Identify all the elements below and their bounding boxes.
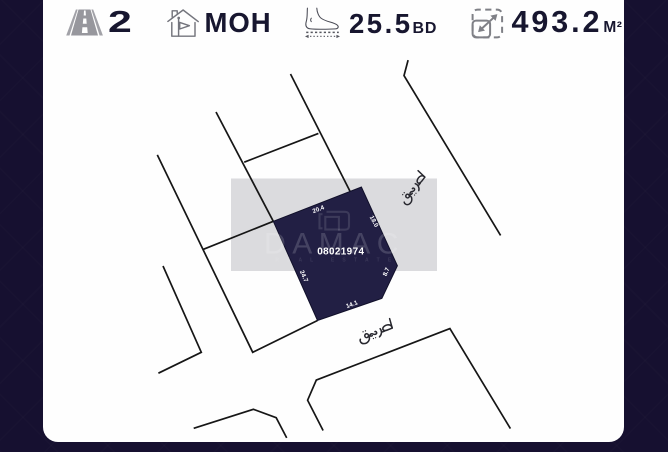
- svg-text:08021974: 08021974: [317, 246, 364, 257]
- svg-text:R E A L E S T A T E: R E A L E S T A T E: [275, 258, 394, 264]
